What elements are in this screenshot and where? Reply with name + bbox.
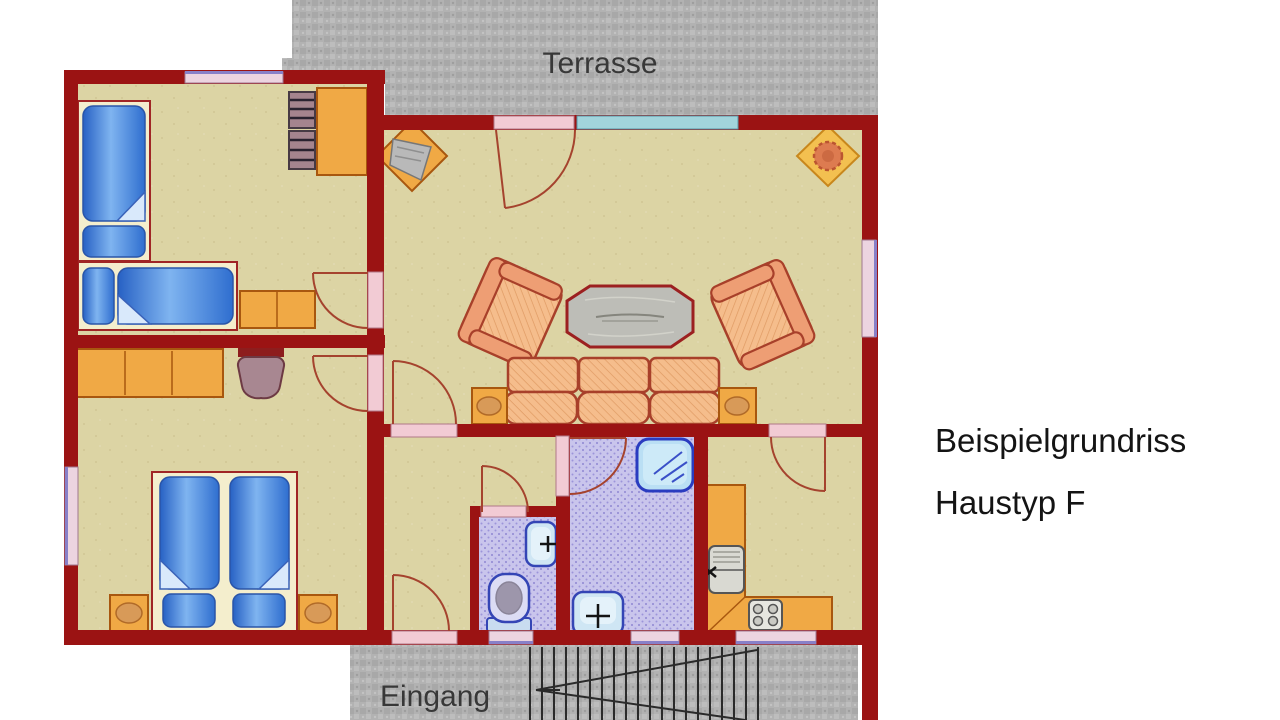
side-table-lamp-icon (719, 388, 756, 424)
nightstand-lamp-icon (299, 595, 337, 631)
door-threshold (556, 436, 569, 496)
window (631, 631, 679, 644)
window (736, 631, 816, 644)
pillow (83, 268, 114, 324)
terrace-door-threshold (494, 116, 574, 129)
side-table-lamp-icon (472, 388, 507, 424)
floor-plan-page: Terrasse Eingang (0, 0, 1280, 720)
door-threshold (391, 424, 457, 437)
floor-plan: Terrasse Eingang (0, 0, 1280, 720)
single-bed-icon (78, 101, 150, 261)
double-bed-icon (152, 472, 297, 631)
pillow (83, 226, 145, 257)
wash-basin-icon (238, 348, 284, 398)
window (862, 240, 877, 337)
sink-icon (573, 592, 623, 635)
door-threshold (368, 272, 383, 328)
caption: Beispielgrundriss Haustyp F (935, 422, 1186, 521)
wall (862, 115, 878, 720)
entrance-area: Eingang (350, 644, 858, 720)
entrance-label: Eingang (380, 680, 490, 713)
chair-icon (289, 92, 315, 128)
window (65, 467, 78, 565)
toilet-icon (487, 574, 531, 632)
wall (694, 424, 708, 633)
terrace-label: Terrasse (542, 47, 657, 80)
wardrobe-icon (77, 349, 223, 397)
wall (470, 506, 479, 633)
kitchen-sink-icon (704, 546, 744, 593)
pillow (233, 594, 285, 627)
wall (64, 630, 385, 645)
desk-icon (317, 88, 367, 175)
pillow (163, 594, 215, 627)
single-bed-icon (78, 262, 237, 330)
window (489, 631, 533, 644)
door-threshold (769, 424, 826, 437)
wall (64, 335, 385, 348)
coffee-table-icon (567, 286, 693, 347)
chair-icon (289, 131, 315, 169)
entrance-door-threshold (392, 631, 457, 644)
dresser-icon (240, 291, 315, 328)
caption-line2: Haustyp F (935, 484, 1085, 521)
door-threshold (481, 506, 526, 517)
door-threshold (368, 355, 383, 411)
window (577, 116, 738, 129)
sink-icon (526, 522, 556, 566)
sofa-icon (505, 358, 720, 424)
caption-line1: Beispielgrundriss (935, 422, 1186, 459)
nightstand-lamp-icon (110, 595, 148, 631)
window (185, 71, 283, 83)
shower-icon (637, 439, 693, 491)
stove-icon (749, 600, 782, 630)
